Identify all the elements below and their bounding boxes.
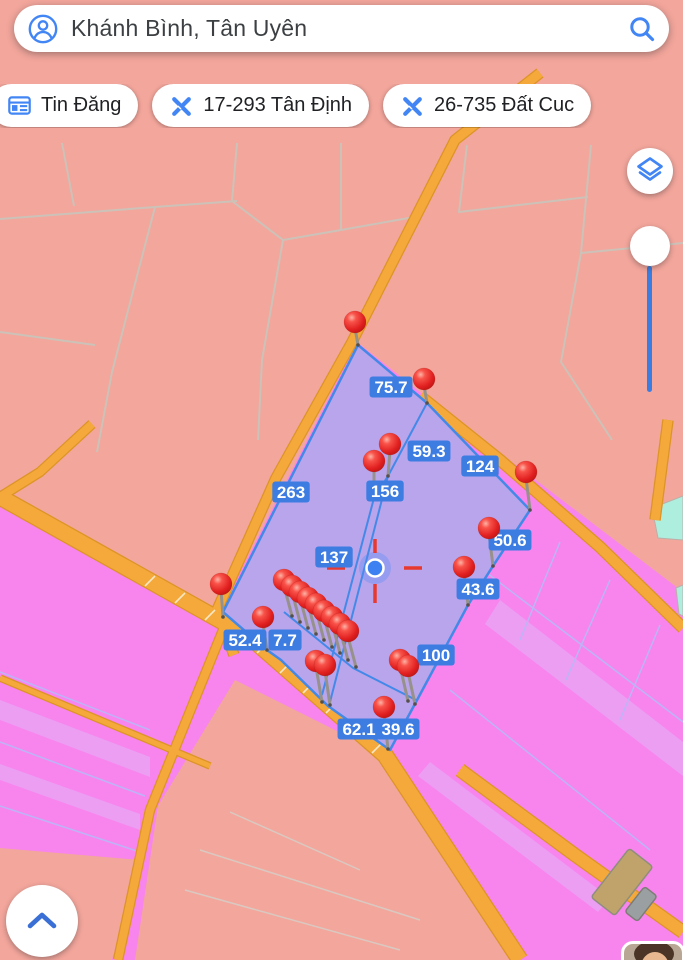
chip-17-293-tan-dinh[interactable]: 17-293 Tân Định: [152, 84, 369, 127]
survey-tools-icon: [400, 93, 425, 118]
map-pin: [363, 450, 385, 472]
measurement-value: 39.6: [381, 720, 414, 739]
measurement-value: 7.7: [273, 631, 297, 650]
zoom-slider-track[interactable]: [647, 266, 652, 392]
pin-tip: [346, 658, 350, 662]
search-icon[interactable]: [628, 15, 656, 43]
pin-tip: [298, 620, 302, 624]
pin-tip: [386, 474, 390, 478]
map-app: 75.759.312426315613750.643.652.47.710062…: [0, 0, 683, 960]
pin-tip: [320, 700, 324, 704]
measurement-value: 124: [466, 457, 495, 476]
pin-tip: [338, 651, 342, 655]
listings-icon: [7, 93, 32, 118]
measurement-value: 75.7: [374, 378, 407, 397]
pin-tip: [330, 645, 334, 649]
layers-icon: [627, 148, 673, 194]
chip-26-735-dat-cuc[interactable]: 26-735 Đất Cuc: [383, 84, 591, 127]
pin-tip: [413, 702, 417, 706]
user-avatar[interactable]: [621, 941, 683, 960]
layers-button[interactable]: [627, 148, 673, 194]
measurement-value: 263: [277, 483, 305, 502]
pin-tip: [328, 703, 332, 707]
expand-button[interactable]: [6, 885, 78, 957]
pin-tip: [356, 343, 360, 347]
map-pin: [413, 368, 435, 390]
chip-label: 26-735 Đất Cuc: [434, 94, 574, 117]
pin-tip: [406, 699, 410, 703]
chip-tin-dang[interactable]: Tin Đăng: [0, 84, 138, 127]
pin-tip: [386, 747, 390, 751]
pin-tip: [425, 401, 429, 405]
survey-tools-icon: [169, 93, 194, 118]
search-bar[interactable]: Khánh Bình, Tân Uyên: [14, 5, 669, 52]
pin-tip: [314, 632, 318, 636]
pin-tip: [306, 626, 310, 630]
map-pin: [453, 556, 475, 578]
pin-tip: [528, 508, 532, 512]
chevron-up-icon: [22, 907, 62, 935]
map-pin: [337, 620, 359, 642]
measurement-value: 62.1: [342, 720, 375, 739]
location-marker: [367, 560, 384, 577]
measurement-value: 52.4: [228, 631, 262, 650]
chip-label: 17-293 Tân Định: [203, 94, 352, 117]
pin-tip: [491, 564, 495, 568]
map-pin: [344, 311, 366, 333]
map-pin: [379, 433, 401, 455]
map-pin: [210, 573, 232, 595]
measurement-value: 156: [371, 482, 399, 501]
map-pin: [397, 655, 419, 677]
map-pin: [478, 517, 500, 539]
account-circle-icon[interactable]: [27, 13, 59, 45]
map-pin: [314, 654, 336, 676]
map-pin: [252, 606, 274, 628]
chip-label: Tin Đăng: [41, 94, 121, 117]
chips-row: Tin Đăng 17-293 Tân Định 26-735 Đất Cuc: [0, 84, 683, 128]
pin-tip: [290, 614, 294, 618]
pin-tip: [466, 603, 470, 607]
measurement-value: 59.3: [412, 442, 445, 461]
map-canvas[interactable]: 75.759.312426315613750.643.652.47.710062…: [0, 0, 683, 960]
pin-tip: [354, 665, 358, 669]
measurement-value: 137: [320, 548, 348, 567]
measurement-value: 100: [422, 646, 450, 665]
measurement-value: 43.6: [461, 580, 494, 599]
pin-tip: [221, 615, 225, 619]
map-pin: [373, 696, 395, 718]
map-pin: [515, 461, 537, 483]
zoom-slider-knob[interactable]: [630, 226, 670, 266]
search-input[interactable]: Khánh Bình, Tân Uyên: [71, 15, 616, 42]
pin-tip: [322, 638, 326, 642]
